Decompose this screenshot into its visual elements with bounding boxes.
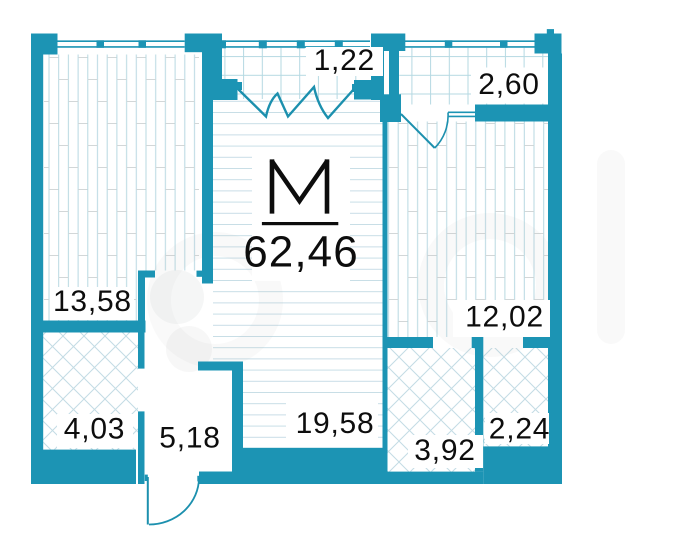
- svg-text:19,58: 19,58: [296, 407, 375, 440]
- svg-text:13,58: 13,58: [53, 285, 132, 318]
- svg-text:4,03: 4,03: [64, 413, 125, 446]
- svg-text:5,18: 5,18: [159, 422, 220, 455]
- svg-text:2,60: 2,60: [478, 68, 539, 101]
- svg-text:1,22: 1,22: [314, 44, 375, 77]
- svg-text:2,24: 2,24: [489, 413, 550, 446]
- svg-text:3,92: 3,92: [414, 434, 475, 467]
- svg-text:12,02: 12,02: [465, 301, 544, 334]
- svg-text:62,46: 62,46: [243, 228, 359, 277]
